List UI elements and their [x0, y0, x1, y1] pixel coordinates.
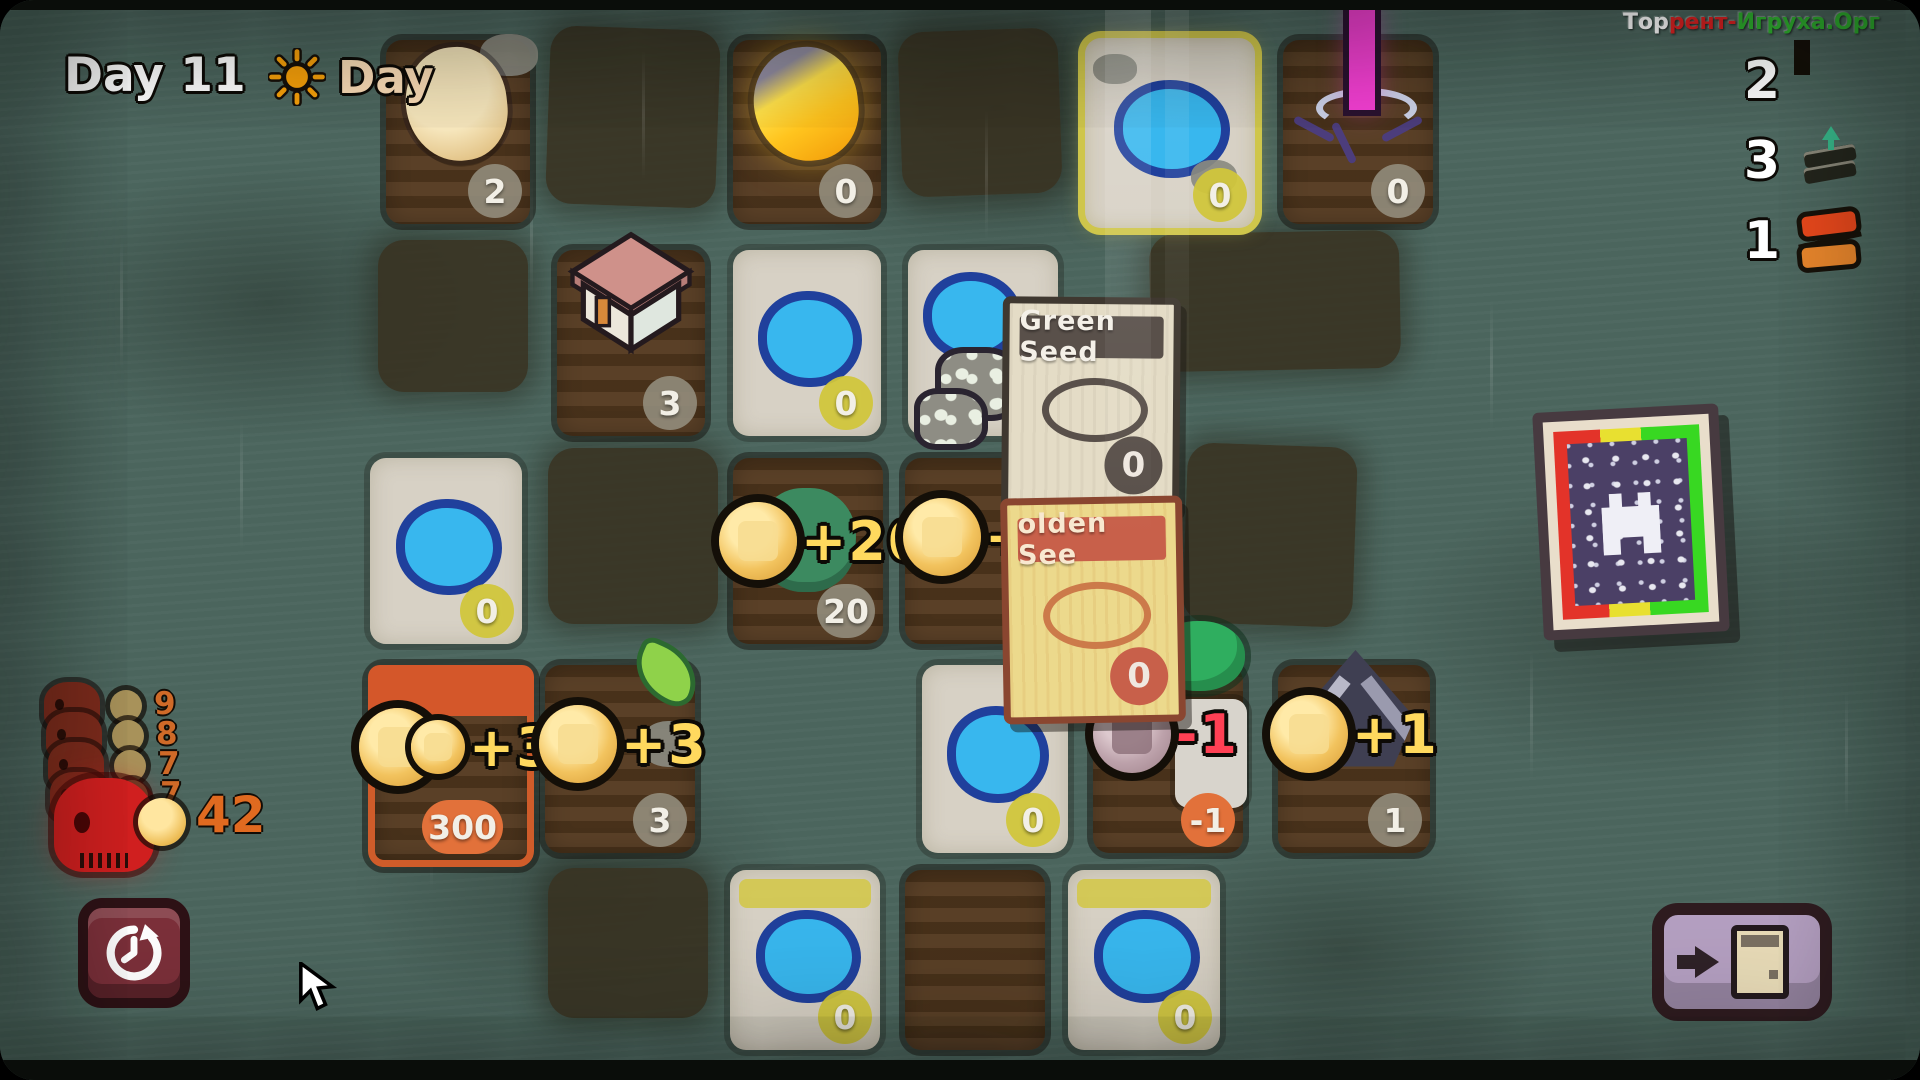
- golden-egg-plot[interactable]: 0: [733, 40, 881, 224]
- coin-icon: [539, 705, 617, 783]
- planks-icon: [1798, 208, 1864, 274]
- game-screen: 2 0 0 0 3 0: [0, 0, 1920, 1080]
- resource-coins: 2: [1736, 48, 1864, 114]
- golden-seed-card[interactable]: olden See 0: [1000, 495, 1186, 724]
- tile-count-badge: 0: [1006, 793, 1060, 847]
- rain-streak: [642, 50, 645, 180]
- dirt-plot-bottom[interactable]: [905, 870, 1045, 1050]
- card-title: olden See: [1017, 515, 1166, 562]
- phase-label: Day: [338, 51, 434, 104]
- coin-gain-indicator: +1: [1270, 695, 1439, 773]
- pond-plot-mid[interactable]: 0: [733, 250, 881, 436]
- mouse-cursor: [298, 962, 342, 1014]
- letterbox-bar: [0, 0, 1920, 10]
- cards-count: 3: [1736, 131, 1780, 191]
- watered-band: [739, 879, 871, 908]
- tile-count-badge: 3: [643, 376, 697, 430]
- empty-plot[interactable]: [378, 240, 528, 392]
- house-plot[interactable]: 3: [557, 250, 705, 436]
- rain-streak: [240, 420, 243, 550]
- watermark: Торрент-Игруха.Орг: [1623, 10, 1880, 35]
- card-pack-art: [1567, 438, 1695, 606]
- day-counter: Day 11: [64, 48, 246, 103]
- tile-count-badge: -1: [1181, 793, 1235, 847]
- empty-plot[interactable]: [1182, 442, 1358, 628]
- seed-slot-oval: [1042, 581, 1151, 650]
- coin-icon: [110, 690, 142, 722]
- empty-plot[interactable]: [548, 868, 708, 1018]
- history-clock-icon: [101, 920, 167, 986]
- rain-streak: [530, 170, 533, 300]
- pond-plot-bottom-right[interactable]: 0: [1068, 870, 1220, 1050]
- tile-count-badge: 0: [1193, 168, 1247, 222]
- gain-amount: +1: [1352, 703, 1439, 766]
- pond: [396, 499, 502, 595]
- orange-harvest-plot[interactable]: +300 300: [368, 665, 534, 867]
- coin-gain-indicator: +3: [539, 705, 708, 783]
- tent-plot[interactable]: +1 1: [1278, 665, 1430, 853]
- watermark-part-red: рент-: [1669, 10, 1737, 35]
- arrow-right-icon: [1695, 946, 1719, 978]
- sprout-plot[interactable]: +20 20: [733, 458, 883, 644]
- coin-icon: [1270, 695, 1348, 773]
- empty-plot[interactable]: [897, 27, 1063, 197]
- seed-slot-oval: [1041, 378, 1147, 443]
- coin-icon: [1798, 48, 1864, 114]
- gain-amount: +3: [621, 713, 708, 776]
- threat-panel: 9 8 7 7 42: [44, 682, 284, 872]
- rain-streak: [1490, 300, 1493, 430]
- small-sprout-plot[interactable]: +3 3: [545, 665, 695, 853]
- tile-count-badge: 20: [817, 584, 875, 638]
- threat-total: 42: [196, 786, 266, 844]
- wand-plot[interactable]: 0: [1283, 40, 1433, 224]
- card-count-badge: 0: [1110, 647, 1169, 706]
- watermark-part-white: Тор: [1623, 10, 1669, 35]
- resource-planks: 1: [1736, 208, 1864, 274]
- pond-plot-left[interactable]: 0: [370, 458, 522, 644]
- resource-cards: 3: [1736, 128, 1864, 194]
- history-button[interactable]: [78, 898, 190, 1008]
- coin-icon: [138, 798, 186, 846]
- phase-indicator: Day: [268, 48, 434, 106]
- coin-icon: [114, 750, 146, 782]
- root-decor: [1331, 122, 1357, 165]
- tile-count-badge: 3: [633, 793, 687, 847]
- tile-count-badge: 0: [460, 584, 514, 638]
- rock-pile: [914, 388, 988, 450]
- tile-count-badge: 0: [1158, 990, 1212, 1044]
- coin-icon: [112, 720, 144, 752]
- coin-gain-indicator: +20: [719, 502, 927, 580]
- rain-streak: [120, 240, 123, 370]
- coin-icon: [719, 502, 797, 580]
- card-title: Green Seed: [1019, 315, 1164, 358]
- stone-decor: [1093, 54, 1137, 84]
- leaf: [624, 634, 709, 713]
- coin-icon: [411, 720, 465, 774]
- sun-icon: [268, 48, 326, 106]
- rainbow-border: [1553, 424, 1709, 619]
- planks-count: 1: [1736, 211, 1780, 271]
- exit-button[interactable]: [1652, 903, 1832, 1021]
- rain-streak: [985, 110, 988, 240]
- house: [563, 226, 699, 356]
- coins-count: 2: [1736, 51, 1780, 111]
- coin-icon: [903, 498, 981, 576]
- golden-egg: [748, 42, 863, 166]
- card-pack[interactable]: [1532, 403, 1730, 640]
- pond-plot-top[interactable]: 0: [1085, 38, 1255, 228]
- pond-plot-bottom-left[interactable]: 0: [730, 870, 880, 1050]
- empty-plot[interactable]: [545, 25, 721, 209]
- card-count-badge: 0: [1104, 436, 1163, 495]
- door-icon: [1731, 925, 1789, 999]
- tile-count-badge: 0: [1371, 164, 1425, 218]
- tile-count-badge: 1: [1368, 793, 1422, 847]
- letterbox-bar: [0, 1060, 1920, 1080]
- magic-wand: [1349, 0, 1375, 110]
- dead-grass-patch: [1149, 230, 1401, 372]
- green-seed-card[interactable]: Green Seed 0: [1001, 296, 1181, 512]
- empty-plot[interactable]: [548, 448, 718, 624]
- pond: [758, 291, 862, 387]
- watered-band: [1077, 879, 1211, 908]
- castle-icon: [1601, 491, 1662, 555]
- tile-count-badge: 0: [818, 990, 872, 1044]
- card-stack-icon: [1798, 128, 1864, 194]
- rain-streak: [1530, 650, 1533, 780]
- rain-streak: [1845, 690, 1848, 820]
- tile-count-badge: 2: [468, 164, 522, 218]
- tile-count-badge: 300: [422, 800, 503, 854]
- tile-count-badge: 0: [819, 164, 873, 218]
- tile-count-badge: 0: [819, 376, 873, 430]
- watermark-part-green: Игруха.Орг: [1737, 10, 1880, 35]
